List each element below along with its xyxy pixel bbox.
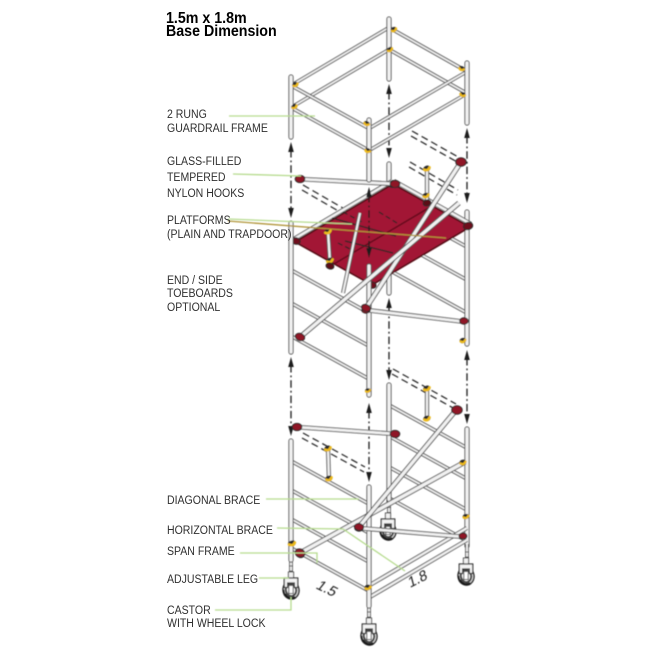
- svg-text:1.8: 1.8: [407, 567, 429, 592]
- svg-text:1.5: 1.5: [313, 578, 341, 600]
